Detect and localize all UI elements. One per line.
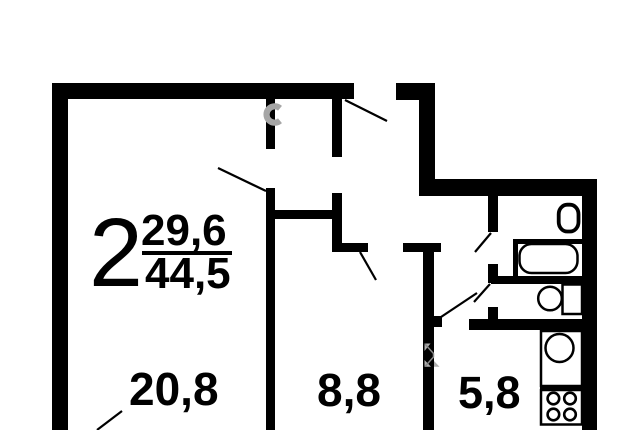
svg-text:29,6: 29,6 (141, 206, 227, 255)
svg-text:2: 2 (89, 198, 143, 307)
svg-text:5,8: 5,8 (458, 367, 521, 418)
svg-text:20,8: 20,8 (129, 363, 219, 415)
svg-text:8,8: 8,8 (317, 364, 381, 416)
svg-text:44,5: 44,5 (145, 249, 231, 298)
